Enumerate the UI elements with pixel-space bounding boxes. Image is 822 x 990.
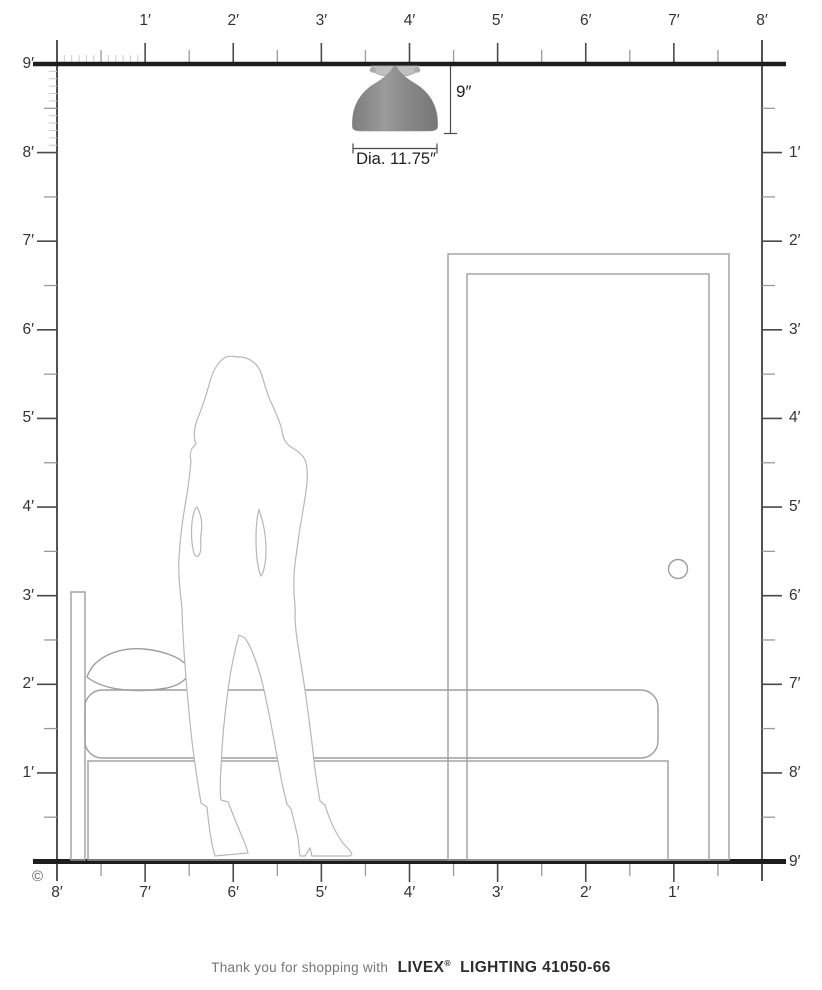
- top-ruler-label-1′: 1′: [139, 12, 151, 30]
- woman-outline: [179, 356, 352, 856]
- top-ruler-ticks: [64, 43, 718, 62]
- fixture-height-label: 9″: [456, 82, 471, 102]
- diagram-artwork: [0, 0, 822, 990]
- bottom-ruler-label-5′: 5′: [316, 884, 328, 902]
- door: [448, 254, 729, 860]
- top-ruler-label-8′: 8′: [756, 12, 768, 30]
- left-ruler-label-2′: 2′: [6, 675, 34, 693]
- bottom-ruler-label-4′: 4′: [404, 884, 416, 902]
- right-ruler-label-8′: 8′: [789, 764, 801, 782]
- left-ruler-label-4′: 4′: [6, 498, 34, 516]
- bottom-ruler-label-1′: 1′: [668, 884, 680, 902]
- top-ruler-label-3′: 3′: [316, 12, 328, 30]
- registered-trademark-icon: ®: [444, 958, 450, 968]
- mattress: [85, 690, 658, 758]
- flush-mount-light: [352, 66, 437, 131]
- light-dome-shade: [352, 67, 437, 132]
- fixture-diameter-label: Dia. 11.75″: [340, 150, 452, 169]
- door-frame: [448, 254, 729, 860]
- left-ruler-label-8′: 8′: [6, 144, 34, 162]
- top-ruler-label-5′: 5′: [492, 12, 504, 30]
- doorknob: [669, 560, 688, 579]
- bottom-ruler-label-2′: 2′: [580, 884, 592, 902]
- bottom-ruler-label-8′: 8′: [51, 884, 63, 902]
- canopy-left-finial: [370, 67, 377, 72]
- left-ruler-label-9′: 9′: [6, 55, 34, 73]
- bed-base: [88, 761, 668, 860]
- left-ruler-ticks: [37, 71, 57, 817]
- right-ruler-label-7′: 7′: [789, 675, 801, 693]
- left-ruler-label-5′: 5′: [6, 409, 34, 427]
- bottom-ruler-label-7′: 7′: [139, 884, 151, 902]
- pillow: [87, 649, 188, 691]
- footer-caption: Thank you for shopping with LIVEX® LIGHT…: [0, 950, 822, 981]
- top-ruler-label-4′: 4′: [404, 12, 416, 30]
- woman-silhouette: [179, 356, 352, 856]
- canopy-right-finial: [414, 67, 421, 72]
- left-ruler-label-6′: 6′: [6, 321, 34, 339]
- bottom-ruler-label-3′: 3′: [492, 884, 504, 902]
- left-ruler-label-3′: 3′: [6, 587, 34, 605]
- top-ruler-label-6′: 6′: [580, 12, 592, 30]
- right-ruler-label-9′: 9′: [789, 853, 801, 871]
- bottom-ruler-label-6′: 6′: [227, 884, 239, 902]
- door-panel: [467, 274, 709, 860]
- right-ruler-label-4′: 4′: [789, 409, 801, 427]
- left-ruler-label-7′: 7′: [6, 232, 34, 250]
- bottom-ruler-ticks: [101, 864, 718, 882]
- right-ruler-label-5′: 5′: [789, 498, 801, 516]
- right-ruler-label-2′: 2′: [789, 232, 801, 250]
- headboard-post: [71, 592, 85, 860]
- footer-thanks-text: Thank you for shopping with: [211, 960, 388, 975]
- footer-product-model: LIGHTING 41050-66: [460, 959, 611, 976]
- right-ruler-label-3′: 3′: [789, 321, 801, 339]
- right-ruler-label-6′: 6′: [789, 587, 801, 605]
- copyright-symbol: ©: [32, 868, 43, 885]
- right-ruler-ticks: [762, 108, 782, 817]
- top-ruler-label-7′: 7′: [668, 12, 680, 30]
- top-ruler-label-2′: 2′: [227, 12, 239, 30]
- dimension-diagram: 1′2′3′4′5′6′7′8′9′8′7′6′5′4′3′2′1′1′2′3′…: [0, 0, 822, 990]
- bed: [71, 592, 668, 860]
- left-ruler-label-1′: 1′: [6, 764, 34, 782]
- right-ruler-label-1′: 1′: [789, 144, 801, 162]
- footer-brand: LIVEX: [398, 959, 445, 976]
